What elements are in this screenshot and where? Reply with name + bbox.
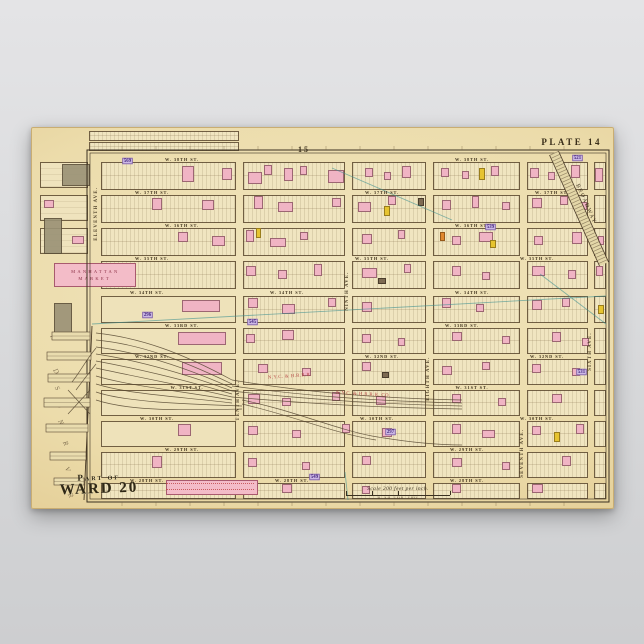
avenue-label: NINTH AVE. bbox=[345, 253, 350, 311]
street-label: W. 35TH ST. bbox=[520, 256, 554, 260]
red-annotation-squiggle bbox=[166, 478, 254, 490]
street-label: W. 37TH ST. bbox=[135, 190, 169, 194]
parcel-number-badge: 539 bbox=[485, 224, 495, 230]
ward-title: Part of WARD 20 bbox=[36, 470, 163, 500]
street-label: W. 30TH ST. bbox=[360, 416, 394, 420]
parcel-number-badge: 521 bbox=[572, 155, 582, 161]
street-label: W. 37TH ST. bbox=[535, 190, 569, 194]
broadway-street: BROADWAY bbox=[550, 151, 609, 266]
street-label: W. 31ST ST. bbox=[170, 385, 203, 389]
street-label: W. 28TH ST. bbox=[275, 478, 309, 482]
avenue-label: SEVENTH AVE. bbox=[520, 420, 525, 478]
street-label: W. 31ST ST. bbox=[455, 385, 488, 389]
parcel-number-badge: 297 bbox=[385, 429, 395, 435]
street-label: W. 34TH ST. bbox=[130, 290, 164, 294]
street-label: W. 33RD ST. bbox=[165, 323, 199, 327]
street-label: W. 32ND ST. bbox=[365, 354, 399, 358]
street-label: W. 29TH ST. bbox=[165, 447, 199, 451]
street-label: W. 30TH ST. bbox=[140, 416, 174, 420]
street-label: W. 34TH ST. bbox=[270, 290, 304, 294]
street-label: W. 35TH ST. bbox=[355, 256, 389, 260]
street-label: W. 36TH ST. bbox=[165, 223, 199, 227]
street-label: W. 37TH ST. bbox=[365, 190, 399, 194]
street-label: W. 28TH ST. bbox=[450, 478, 484, 482]
map-linework-overlay: BROADWAY bbox=[32, 128, 613, 508]
parcel-number-badge: 569 bbox=[122, 158, 132, 164]
street-label: W. 32ND ST. bbox=[530, 354, 564, 358]
avenue-label: SIXTH AVE. bbox=[588, 313, 593, 371]
street-label: W. 32ND ST. bbox=[135, 354, 169, 358]
street-label: W. 38TH ST. bbox=[455, 157, 489, 161]
street-label: W. 29TH ST. bbox=[450, 447, 484, 451]
street-label: W. 34TH ST. bbox=[455, 290, 489, 294]
parcel-number-badge: 531 bbox=[576, 369, 586, 375]
railroad-tracks bbox=[68, 333, 462, 445]
avenue-label: ELEVENTH AVE. bbox=[94, 183, 99, 241]
map-canvas: PLATE 14 15 13 MANHATTAN MARKET Part of … bbox=[32, 128, 613, 508]
parcel-number-badge: 296 bbox=[142, 312, 152, 318]
piers bbox=[44, 332, 91, 485]
avenue-label: EIGHTH AVE. bbox=[426, 343, 431, 401]
parcel-number-badge: 545 bbox=[247, 319, 257, 325]
map-scale: Scale 200 feet per inch. 0 50 100 200 bbox=[328, 486, 468, 501]
street-label: W. 30TH ST. bbox=[520, 416, 554, 420]
street-label: W. 38TH ST. bbox=[165, 157, 199, 161]
parcel-number-badge: 549 bbox=[309, 474, 319, 480]
street-label: W. 35TH ST. bbox=[135, 256, 169, 260]
street-label: W. 36TH ST. bbox=[455, 223, 489, 227]
street-label: W. 33RD ST. bbox=[445, 323, 479, 327]
atlas-map-poster[interactable]: PLATE 14 15 13 MANHATTAN MARKET Part of … bbox=[31, 127, 614, 509]
avenue-label: TENTH AVE. bbox=[236, 363, 241, 421]
scale-tick-numbers: 0 50 100 200 bbox=[342, 497, 454, 501]
